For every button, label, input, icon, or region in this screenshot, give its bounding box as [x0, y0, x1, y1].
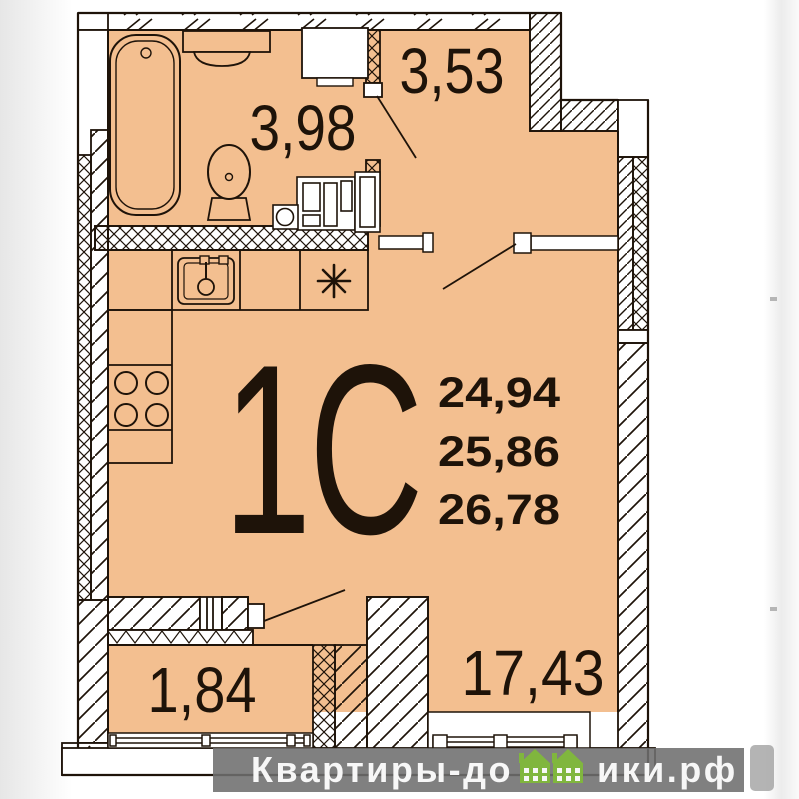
watermark-text-right: ики.рф: [597, 749, 738, 790]
living-room-window: [428, 712, 590, 748]
living-room-area-label: 17,43: [462, 637, 605, 709]
fridge-asterisk-icon: [318, 265, 350, 297]
area-value-3: 26,78: [438, 486, 560, 534]
page-edge-mark: [770, 297, 777, 301]
floorplan-drawing: 3,98 3,53 1,84 17,43 1С 24,94 25,86 26,7…: [0, 0, 799, 799]
page-edge-left: [0, 0, 72, 799]
hallway-area-label: 3,53: [400, 35, 505, 107]
floorplan-page: 3,98 3,53 1,84 17,43 1С 24,94 25,86 26,7…: [0, 0, 799, 799]
page-edge-mark: [770, 607, 777, 611]
watermark: Квартиры-до ики.рф: [213, 745, 774, 792]
bathtub-icon: [110, 35, 180, 215]
balcony-window: [108, 733, 313, 748]
toilet-icon: [208, 145, 250, 220]
watermark-text-left: Квартиры-до: [251, 749, 513, 790]
watermark-bar-edge: [750, 745, 774, 791]
unit-type-label: 1С: [223, 315, 421, 585]
bathroom-area-label: 3,98: [250, 92, 357, 164]
balcony-area-label: 1,84: [148, 654, 257, 726]
area-value-2: 25,86: [438, 428, 560, 476]
washing-machine-icon: [302, 28, 368, 86]
area-value-1: 24,94: [438, 369, 560, 417]
page-edge-right: [764, 0, 799, 799]
